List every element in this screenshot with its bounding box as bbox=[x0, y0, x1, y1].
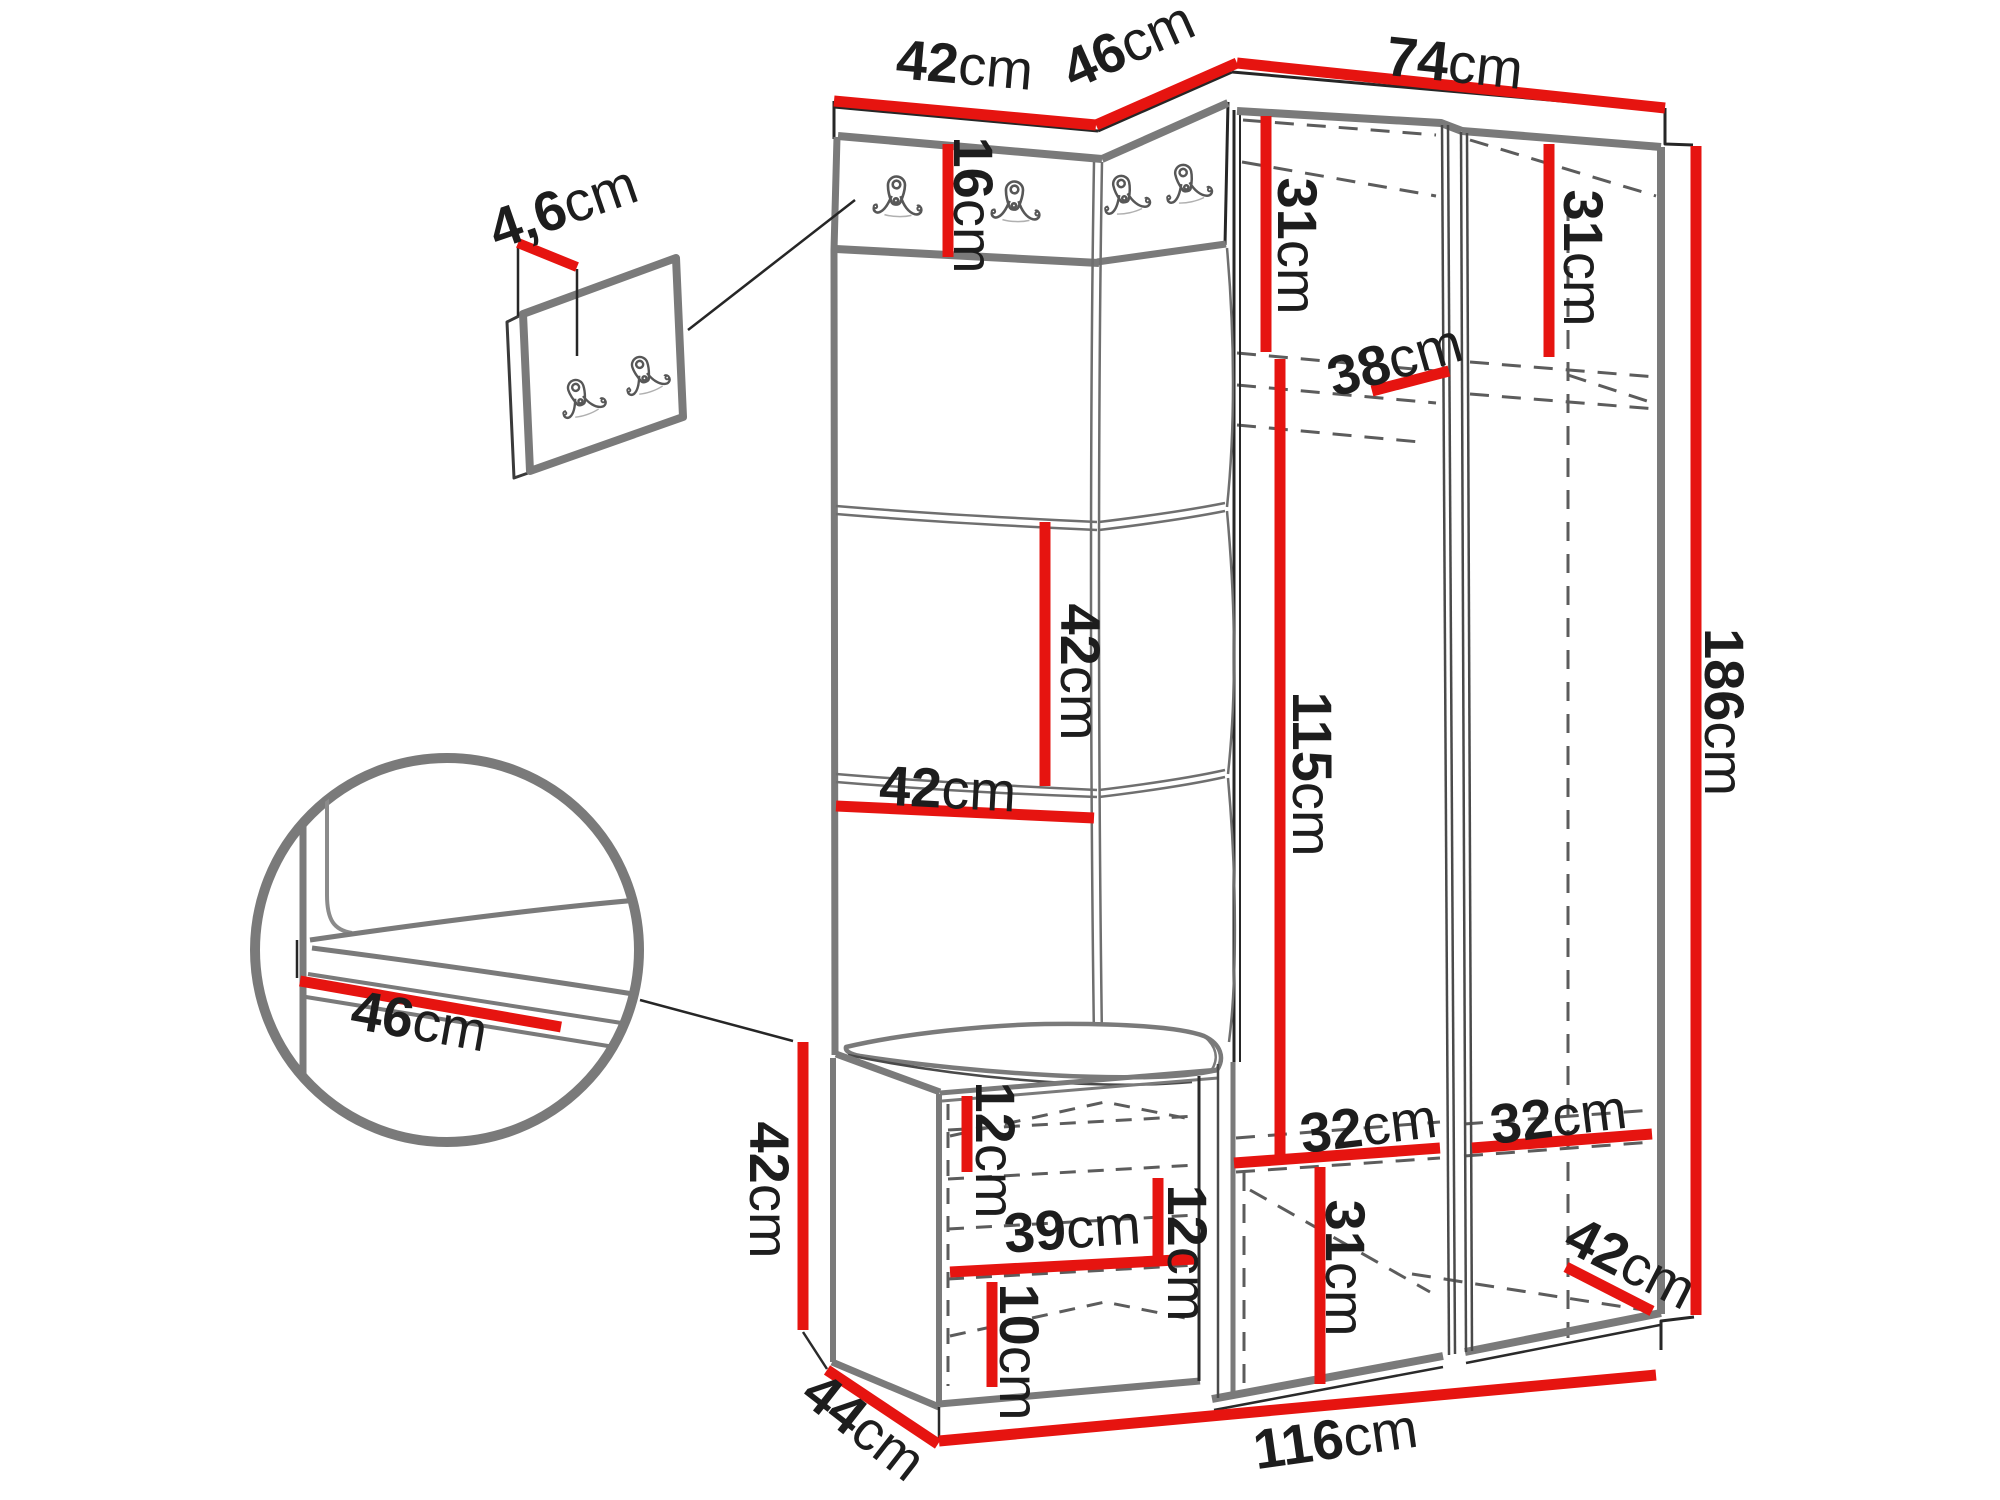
svg-text:42cm: 42cm bbox=[894, 27, 1036, 102]
svg-text:186cm: 186cm bbox=[1693, 628, 1756, 796]
svg-text:10cm: 10cm bbox=[988, 1284, 1051, 1421]
svg-text:42cm: 42cm bbox=[878, 753, 1018, 823]
svg-text:42cm: 42cm bbox=[738, 1122, 801, 1259]
svg-text:31cm: 31cm bbox=[1552, 190, 1615, 327]
svg-text:12cm: 12cm bbox=[1156, 1185, 1219, 1322]
svg-text:16cm: 16cm bbox=[942, 137, 1005, 274]
svg-text:31cm: 31cm bbox=[1266, 178, 1329, 315]
svg-text:39cm: 39cm bbox=[1002, 1192, 1143, 1264]
svg-text:42cm: 42cm bbox=[1049, 604, 1112, 741]
svg-text:31cm: 31cm bbox=[1314, 1200, 1377, 1337]
svg-text:115cm: 115cm bbox=[1281, 692, 1344, 857]
svg-text:12cm: 12cm bbox=[964, 1082, 1027, 1219]
